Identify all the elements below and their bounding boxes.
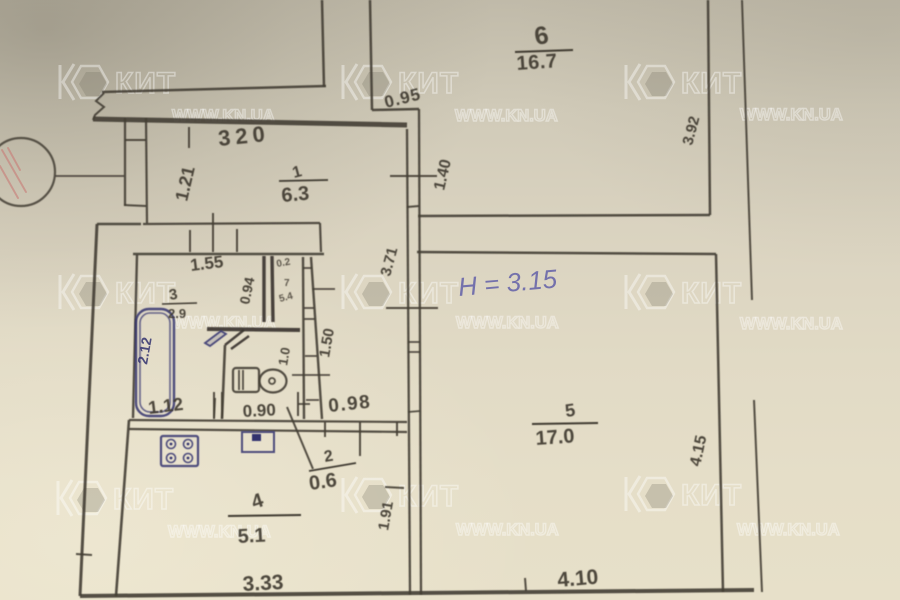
svg-text:17.0: 17.0 xyxy=(535,425,575,450)
svg-text:0.98: 0.98 xyxy=(327,392,372,417)
svg-text:3.33: 3.33 xyxy=(242,571,284,596)
svg-text:2.9: 2.9 xyxy=(168,306,186,321)
svg-text:0.6: 0.6 xyxy=(308,469,339,495)
svg-text:1.55: 1.55 xyxy=(189,252,224,275)
svg-text:1.12: 1.12 xyxy=(147,394,184,418)
svg-text:7: 7 xyxy=(284,278,290,289)
svg-text:0.90: 0.90 xyxy=(242,400,276,421)
svg-text:6.3: 6.3 xyxy=(281,183,311,207)
svg-text:16.7: 16.7 xyxy=(516,50,558,75)
svg-text:5.1: 5.1 xyxy=(237,525,266,548)
svg-text:4.10: 4.10 xyxy=(556,566,599,592)
svg-text:1.0: 1.0 xyxy=(275,346,293,366)
